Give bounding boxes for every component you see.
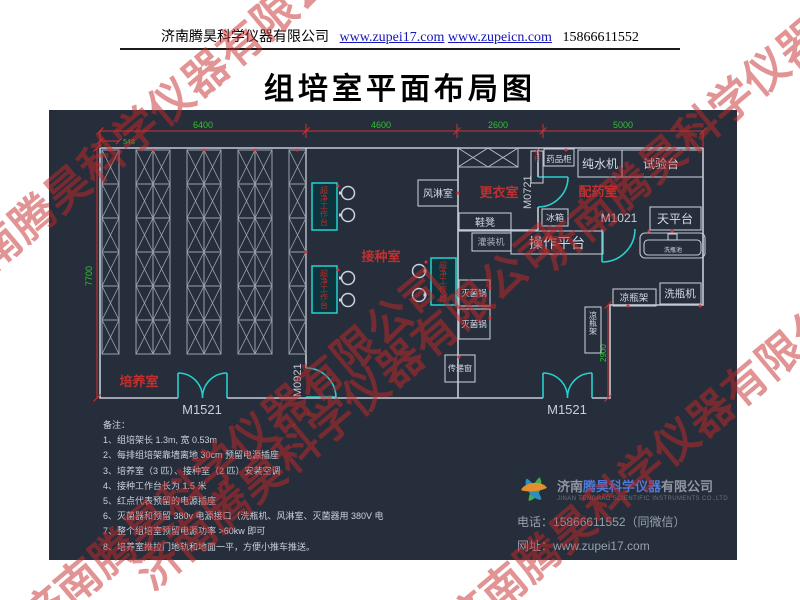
pass-window-label: 传递窗 xyxy=(448,363,472,373)
medicine-cabinet-label: 药品柜 xyxy=(546,154,572,164)
note-item: 2、每排组培架靠墙离地 30cm 预留电源插座 xyxy=(103,448,453,463)
clean-bench-label: 超净工作台 xyxy=(320,268,329,310)
door-m1021 xyxy=(602,229,635,262)
company-logo-icon xyxy=(517,472,551,506)
room-label-dispensing: 配药室 xyxy=(578,184,617,199)
pure-water-label: 纯水机 xyxy=(582,157,618,171)
dim-label-548: 548 xyxy=(123,139,135,146)
rack xyxy=(289,150,306,354)
stool-icon xyxy=(342,187,426,307)
door-m0921 xyxy=(306,368,336,398)
header-rule xyxy=(120,48,680,50)
note-item: 5、红点代表预留的电源插座 xyxy=(103,494,453,509)
page: 济南腾昊科学仪器有限公司 www.zupei17.com www.zupeicn… xyxy=(0,0,800,600)
sterilizer-label: 灭菌锅 xyxy=(461,288,487,298)
company-block: 济南腾昊科学仪器有限公司 JINAN TENGHAO SCIENTIFIC IN… xyxy=(517,472,733,554)
wash-sink-box xyxy=(640,233,705,258)
door-m1521-right xyxy=(543,373,592,398)
door-label-m1021: M1021 xyxy=(601,211,638,225)
wardrobe-label: 衣柜 xyxy=(534,147,542,163)
note-item: 6、灭菌器和预留 380v 电源接口（洗瓶机、风淋室、灭菌器用 380V 电 xyxy=(103,509,453,524)
door-label-m1521-left: M1521 xyxy=(182,402,222,417)
test-bench-label: 试验台 xyxy=(643,156,679,171)
company-name-en: JINAN TENGHAO SCIENTIFIC INSTRUMENTS CO.… xyxy=(557,496,728,502)
fridge-label: 冰箱 xyxy=(546,212,564,223)
door-label-m1521-right: M1521 xyxy=(547,402,587,417)
note-item: 4、接种工作台长为 1.5 米 xyxy=(103,479,453,494)
clean-bench-label: 超净工作台 xyxy=(439,260,448,302)
culture-racks xyxy=(102,150,306,354)
rack xyxy=(136,150,170,354)
header-link-zupei17[interactable]: www.zupei17.com xyxy=(340,30,445,45)
door-label-m0721: M0721 xyxy=(522,175,534,209)
page-title: 组培室平面布局图 xyxy=(0,64,800,108)
bottle-washer-label: 洗瓶机 xyxy=(664,287,696,300)
dim-label-5000: 5000 xyxy=(613,120,633,130)
clean-benches: 超净工作台 超净工作台 超净工作台 xyxy=(312,183,456,313)
wash-sink-faucet xyxy=(668,234,677,240)
company-phone: 电话：15866611552（同微信） xyxy=(517,513,733,530)
notes-block: 备注： 1、组培架长 1.3m, 宽 0.53m 2、每排组培架靠墙离地 30c… xyxy=(103,418,453,555)
dim-label-6400: 6400 xyxy=(193,120,213,130)
air-shower-label: 风淋室 xyxy=(423,187,453,200)
rack xyxy=(238,150,272,354)
dim-label-2600: 2600 xyxy=(488,120,508,130)
dim-label-7700: 7700 xyxy=(84,266,94,286)
rack xyxy=(187,150,221,354)
notes-title: 备注： xyxy=(103,418,453,433)
note-item: 3、培养室（3 匹）、接种室（2 匹）安装空调 xyxy=(103,464,453,479)
dim-label-4600: 4600 xyxy=(371,120,391,130)
clean-bench-label: 超净工作台 xyxy=(320,185,329,227)
room-label-changing: 更衣室 xyxy=(479,185,518,200)
door-label-m0921: M0921 xyxy=(292,363,304,397)
note-item: 1、组培架长 1.3m, 宽 0.53m xyxy=(103,433,453,448)
locker-rack xyxy=(458,148,518,167)
header: 济南腾昊科学仪器有限公司 www.zupei17.com www.zupeicn… xyxy=(0,26,800,46)
header-link-zupeicn[interactable]: www.zupeicn.com xyxy=(448,30,552,45)
cooling-rack-vertical-label: 凉瓶架 xyxy=(589,310,598,336)
equipment xyxy=(418,149,705,382)
door-m1521-left xyxy=(178,373,227,398)
company-website: 网址：www.zupei17.com xyxy=(517,537,733,554)
header-company: 济南腾昊科学仪器有限公司 xyxy=(161,30,329,45)
floor-plan-svg: 6400 4600 2600 5000 548 7700 2900 xyxy=(49,110,737,420)
room-label-inoculation: 接种室 xyxy=(361,249,400,264)
rack xyxy=(102,150,119,354)
cooling-rack-label: 凉瓶架 xyxy=(620,292,649,304)
room-label-culture: 培养室 xyxy=(119,374,158,389)
company-name: 济南腾昊科学仪器有限公司 xyxy=(557,476,728,495)
wash-sink-label: 洗瓶池 xyxy=(664,246,682,254)
header-phone: 15866611552 xyxy=(562,30,638,45)
note-item: 8、培养室推拉门地轨和地面一平，方便小推车推送。 xyxy=(103,540,453,555)
shoe-bench-label: 鞋凳 xyxy=(475,216,495,229)
cad-panel: 6400 4600 2600 5000 548 7700 2900 xyxy=(49,110,737,560)
balance-label: 天平台 xyxy=(657,211,693,226)
note-item: 7、整个组培室预留电源功率 >60kw 即可 xyxy=(103,524,453,539)
operation-platform-label: 操作平台 xyxy=(529,235,585,251)
filling-machine-label: 灌装机 xyxy=(477,236,504,247)
sterilizer-label: 灭菌锅 xyxy=(461,319,487,329)
